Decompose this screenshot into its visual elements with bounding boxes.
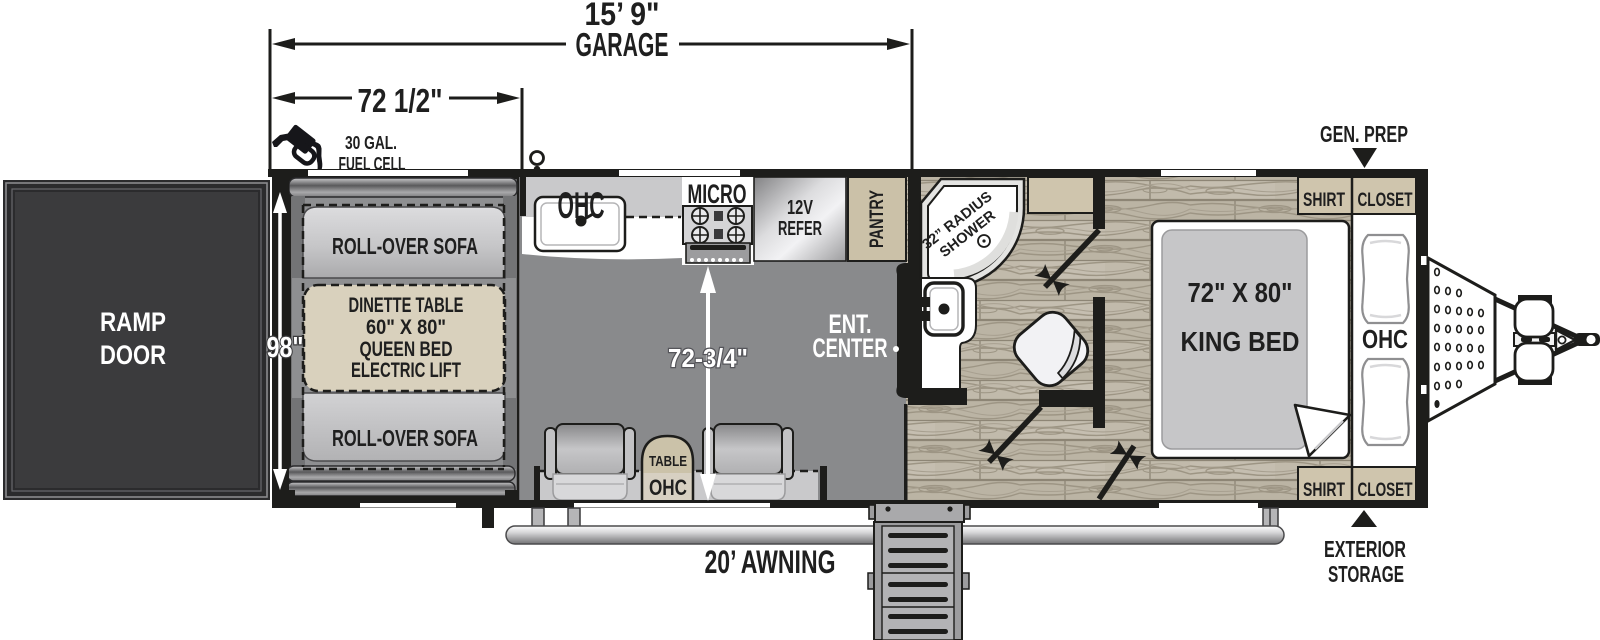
svg-text:CENTER: CENTER bbox=[813, 333, 888, 363]
svg-text:98": 98" bbox=[267, 332, 304, 364]
svg-text:EXTERIOR: EXTERIOR bbox=[1324, 536, 1406, 562]
svg-text:ROLL-OVER SOFA: ROLL-OVER SOFA bbox=[332, 425, 478, 451]
svg-text:OHC: OHC bbox=[649, 475, 687, 500]
svg-text:GEN. PREP: GEN. PREP bbox=[1320, 121, 1408, 147]
svg-text:SHIRT: SHIRT bbox=[1303, 480, 1345, 501]
svg-text:72 1/2": 72 1/2" bbox=[358, 82, 443, 119]
svg-text:12V: 12V bbox=[787, 197, 813, 219]
svg-text:STORAGE: STORAGE bbox=[1328, 561, 1404, 587]
svg-text:CLOSET: CLOSET bbox=[1358, 190, 1413, 211]
svg-text:SHIRT: SHIRT bbox=[1303, 190, 1345, 211]
svg-text:OHC: OHC bbox=[1362, 324, 1408, 354]
svg-text:72-3/4": 72-3/4" bbox=[668, 343, 748, 373]
svg-text:60" X 80": 60" X 80" bbox=[366, 315, 446, 339]
svg-text:DINETTE TABLE: DINETTE TABLE bbox=[349, 293, 464, 317]
svg-text:KING BED: KING BED bbox=[1181, 326, 1300, 357]
svg-text:20’ AWNING: 20’ AWNING bbox=[705, 544, 836, 580]
svg-text:TABLE: TABLE bbox=[649, 453, 687, 470]
svg-text:RAMP: RAMP bbox=[100, 307, 166, 337]
svg-text:72" X 80": 72" X 80" bbox=[1188, 277, 1293, 308]
svg-text:ELECTRIC LIFT: ELECTRIC LIFT bbox=[351, 358, 461, 382]
svg-text:CLOSET: CLOSET bbox=[1358, 480, 1413, 501]
svg-text:MICRO: MICRO bbox=[688, 179, 747, 209]
svg-text:DOOR: DOOR bbox=[100, 340, 166, 370]
svg-text:OHC: OHC bbox=[558, 185, 605, 226]
svg-text:REFER: REFER bbox=[778, 218, 822, 240]
svg-text:ROLL-OVER SOFA: ROLL-OVER SOFA bbox=[332, 233, 478, 259]
svg-text:30 GAL.: 30 GAL. bbox=[345, 133, 397, 153]
svg-text:PANTRY: PANTRY bbox=[867, 190, 888, 248]
svg-text:GARAGE: GARAGE bbox=[576, 26, 669, 63]
